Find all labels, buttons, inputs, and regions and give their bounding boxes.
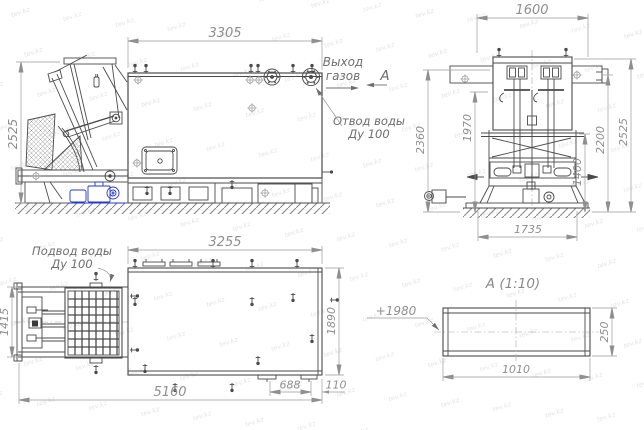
dim-label-1970: 1970 [461, 114, 474, 142]
dim-label-1400: 1400 [571, 158, 584, 186]
ground-hatch [463, 208, 590, 218]
dim-label-2360: 2360 [414, 126, 427, 154]
dim-label-5160: 5160 [153, 385, 186, 400]
water-outlet-label-1: Отвод воды [333, 114, 405, 128]
section-a-title: А (1:10) [485, 276, 540, 292]
dim-label-1890: 1890 [325, 307, 338, 335]
dim-label-3255: 3255 [208, 235, 241, 250]
dim-label-2525-left: 2525 [6, 119, 20, 150]
dim-label-1600: 1600 [515, 3, 548, 18]
dim-label-1735: 1735 [514, 223, 542, 236]
dim-label-688: 688 [280, 379, 301, 392]
water-outlet-label-2: Ду 100 [347, 127, 389, 141]
dim-label-3305: 3305 [208, 26, 241, 41]
dim-label-1010: 1010 [502, 363, 530, 376]
dim-label-110: 110 [326, 379, 347, 392]
dim-label-250: 250 [598, 322, 611, 343]
dim-label-2200: 2200 [594, 126, 607, 154]
water-inlet-label-1: Подвод воды [32, 244, 112, 258]
dim-label-2525-right: 2525 [617, 118, 630, 146]
grating [65, 288, 122, 358]
ground-hatch [15, 203, 330, 214]
section-marker-letter: А [379, 68, 389, 84]
dim-label-1415: 1415 [0, 308, 11, 336]
water-inlet-label-2: Ду 100 [50, 257, 92, 271]
skip-bucket-mesh [26, 114, 55, 170]
technical-drawing-canvas: tev.kz tev.kz [0, 0, 644, 430]
gas-outlet-label-1: Выход [323, 55, 363, 69]
gas-outlet-label-2: газов [326, 69, 360, 83]
elevation-label: +1980 [376, 304, 417, 318]
drawing-svg: tev.kz tev.kz [0, 0, 644, 430]
